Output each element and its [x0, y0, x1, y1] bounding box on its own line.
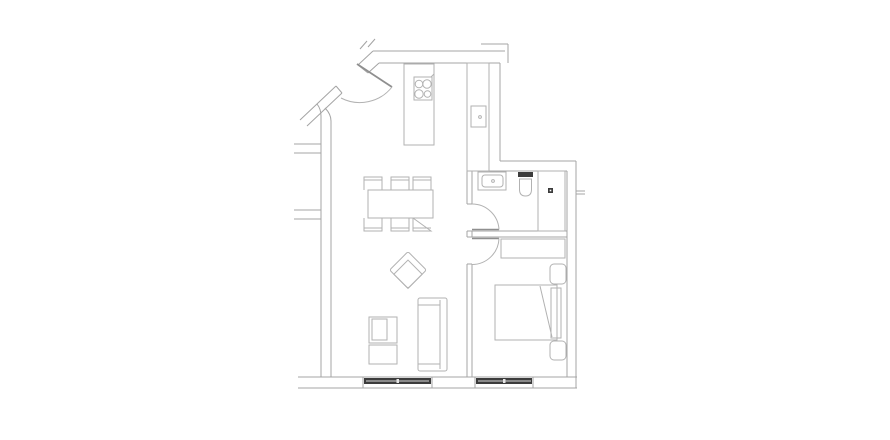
wall-entry-lower-inner — [307, 93, 342, 126]
wall-entry-upper-outer — [358, 51, 373, 65]
chair-bottom-2 — [391, 218, 409, 231]
wardrobe — [501, 239, 565, 258]
armchair-outer — [390, 252, 427, 289]
bathroom-door-arc — [472, 204, 499, 230]
chair-bottom-1 — [364, 218, 382, 231]
shower-drain-dot — [550, 190, 552, 192]
cooktop-burner-2 — [423, 80, 431, 88]
wall-left-inner — [325, 108, 331, 377]
bedroom-window-mullion — [503, 379, 506, 383]
bathroom-sink-faucet-dot — [492, 180, 495, 183]
entry-door-arc — [341, 87, 392, 103]
chair-top-2 — [391, 177, 409, 190]
bed-headboard — [551, 288, 561, 338]
kitchen-sink-drain-dot — [479, 116, 482, 119]
sofa — [418, 298, 447, 371]
chair-top-3 — [413, 177, 431, 190]
dining-table — [368, 190, 433, 218]
armchair-seat — [394, 260, 422, 288]
tv-stand-upper-inner — [372, 319, 387, 340]
wall-cut-mark-1 — [360, 41, 367, 49]
wall-cut-mark-2 — [368, 39, 375, 47]
wall-entry-lower-outer — [300, 86, 336, 120]
cooktop-burner-4 — [424, 91, 431, 98]
wall-divider-jambs — [467, 204, 472, 264]
tv-stand-lower — [369, 345, 397, 364]
nightstand-bottom — [550, 341, 566, 360]
toilet-tank — [518, 172, 533, 177]
bathroom-sink-basin — [482, 175, 503, 187]
shower — [538, 171, 565, 231]
armchair — [390, 252, 427, 289]
cooktop-burner-1 — [415, 80, 423, 88]
bed-fold-line — [540, 286, 552, 337]
cooktop-burner-3 — [415, 90, 423, 98]
kitchen-island — [404, 64, 434, 145]
chair-bottom-3 — [413, 218, 431, 231]
floor-plan — [0, 0, 890, 440]
living-window-mullion — [397, 379, 400, 383]
wall-left-outer — [317, 104, 321, 377]
toilet-bowl — [520, 179, 532, 196]
floorplan-stage — [0, 0, 890, 440]
bedroom-door-arc — [472, 239, 499, 265]
tv-stand-upper — [369, 317, 397, 343]
nightstand-top — [550, 264, 566, 284]
chair-top-1 — [364, 177, 382, 190]
bed — [495, 285, 557, 340]
wall-entry-lower-jamb — [336, 86, 342, 93]
